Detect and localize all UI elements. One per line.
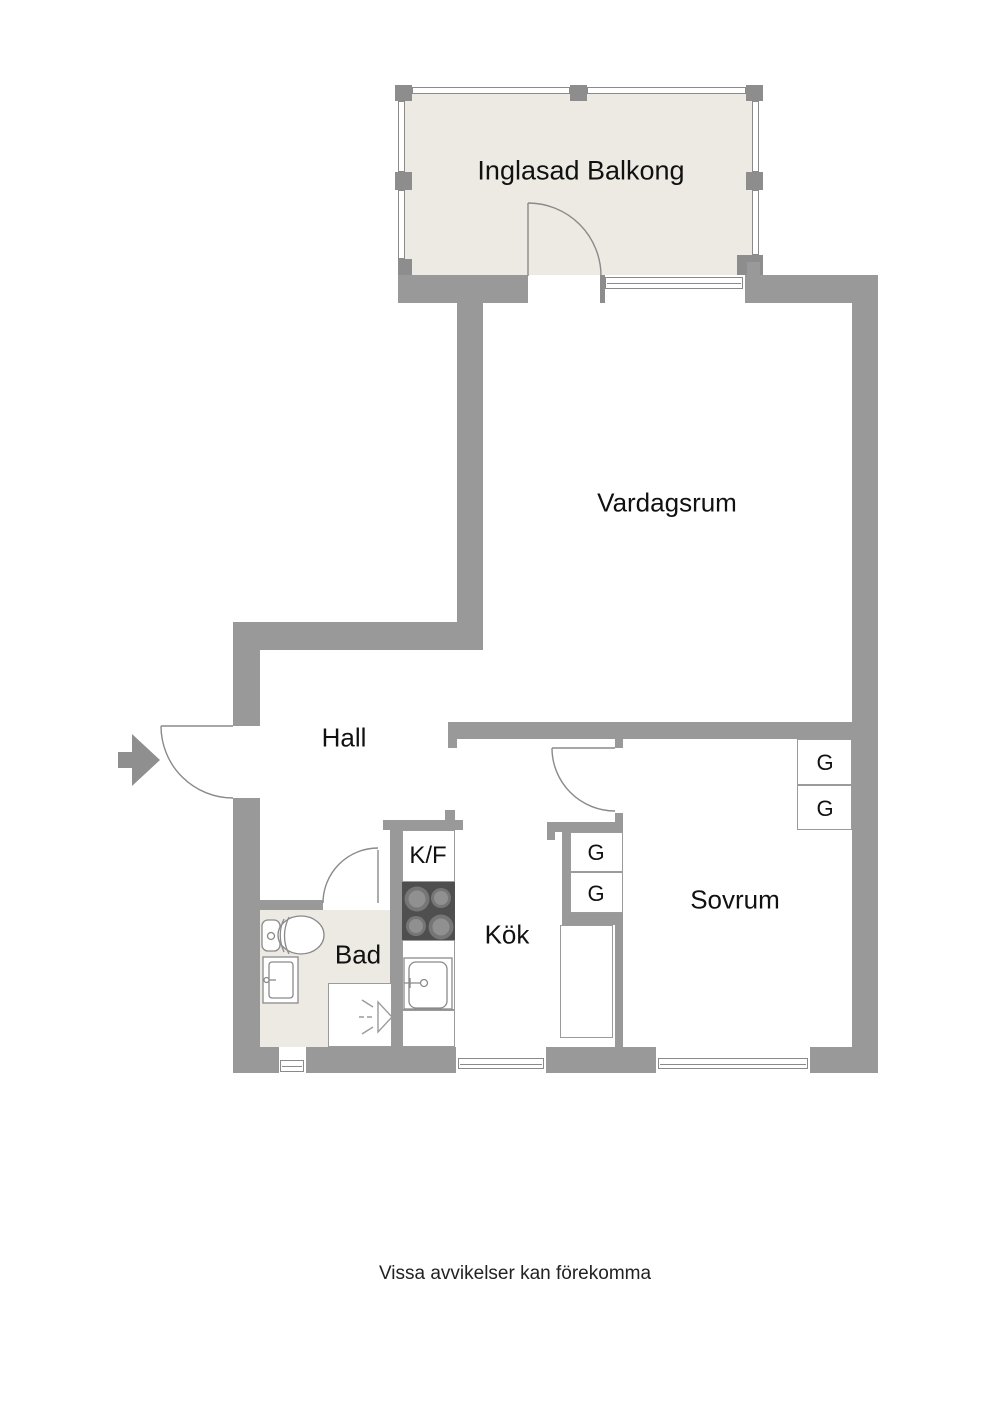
bedroom-wardrobe-2-label: G — [816, 796, 833, 822]
fridge-freezer-label: K/F — [409, 842, 446, 870]
bedroom-wardrobe-1-label: G — [816, 750, 833, 776]
balcony-door-arc — [528, 203, 601, 276]
bedroom-door-arc — [552, 748, 615, 811]
bathroom-label: Bad — [335, 940, 381, 971]
stove-burners — [405, 887, 454, 940]
balcony-label: Inglasad Balkong — [477, 156, 684, 187]
kitchen-wardrobe-1-label: G — [587, 840, 604, 866]
bathroom-sink-faucet-knob — [264, 978, 269, 983]
kitchen-sink-basin — [409, 962, 447, 1008]
doors-and-fixtures-layer — [0, 0, 992, 1403]
hall-label: Hall — [322, 723, 367, 754]
shower-spray-icon — [359, 1000, 392, 1034]
entrance-door-arc — [161, 726, 233, 798]
disclaimer-text: Vissa avvikelser kan förekomma — [379, 1263, 651, 1285]
kitchen-sink-faucet-knob — [421, 980, 428, 987]
toilet-flush-button — [268, 933, 275, 940]
floor-plan-page: Inglasad Balkong Vardagsrum Hall Kök Bad… — [0, 0, 992, 1403]
living-room-label: Vardagsrum — [597, 488, 737, 519]
kitchen-wardrobe-2-label: G — [587, 881, 604, 907]
bathroom-door-arc — [323, 848, 378, 903]
bedroom-label: Sovrum — [690, 885, 780, 916]
kitchen-label: Kök — [485, 920, 530, 951]
